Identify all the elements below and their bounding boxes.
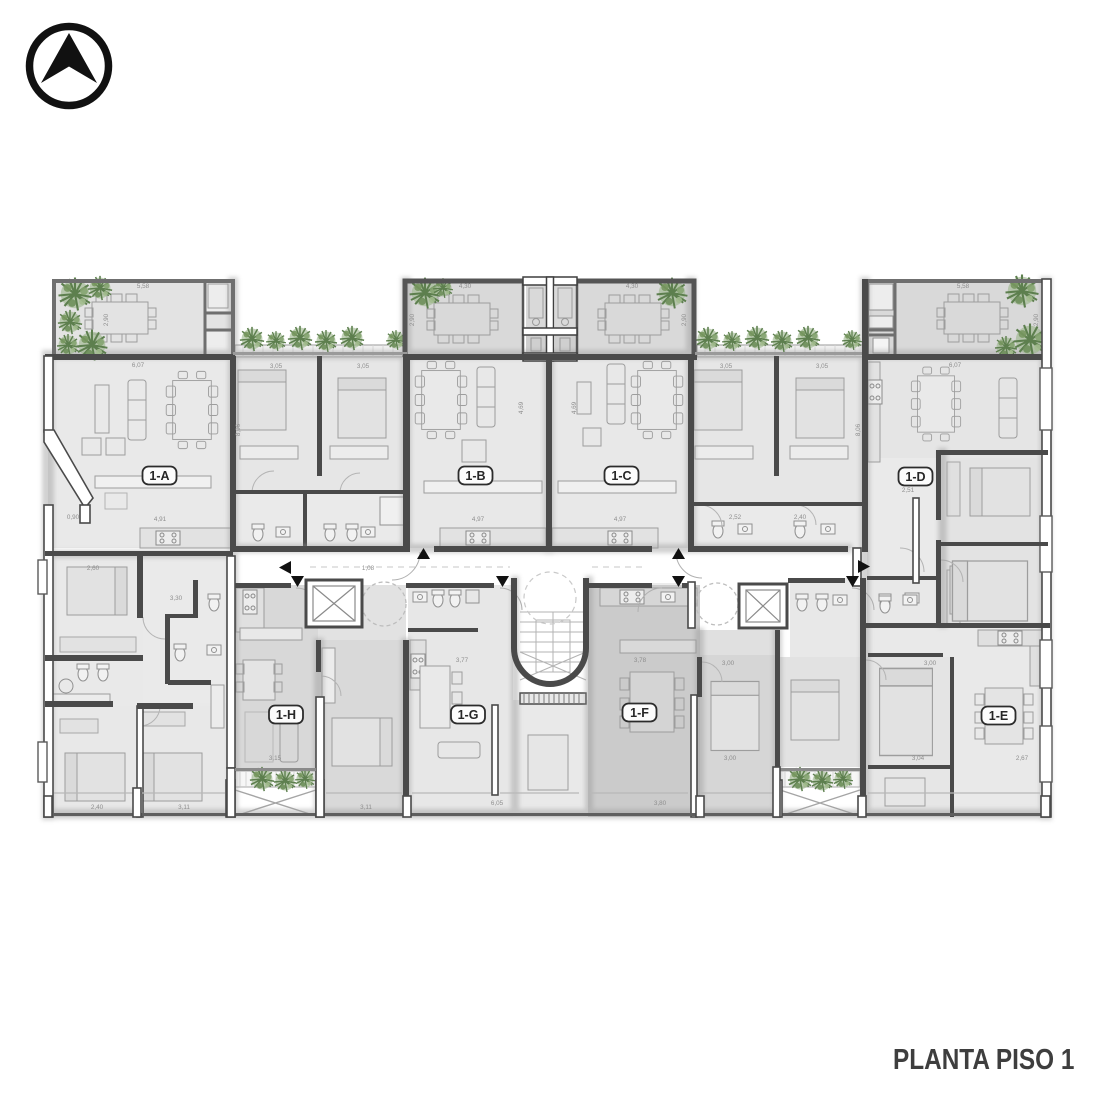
svg-text:2,40: 2,40 — [91, 804, 104, 811]
svg-text:3,00: 3,00 — [724, 755, 737, 762]
svg-text:2,52: 2,52 — [729, 514, 742, 521]
svg-text:3,77: 3,77 — [456, 657, 469, 664]
svg-text:1-A: 1-A — [149, 469, 169, 483]
svg-text:3,15: 3,15 — [269, 755, 282, 762]
svg-text:1,08: 1,08 — [362, 565, 375, 572]
svg-text:3,78: 3,78 — [634, 657, 647, 664]
svg-text:2,90: 2,90 — [1033, 313, 1040, 326]
svg-text:1-G: 1-G — [458, 708, 479, 722]
svg-text:3,05: 3,05 — [816, 363, 829, 370]
svg-text:4,30: 4,30 — [626, 283, 639, 290]
svg-text:4,97: 4,97 — [472, 516, 485, 523]
svg-text:2,67: 2,67 — [1016, 755, 1029, 762]
svg-text:2,40: 2,40 — [794, 514, 807, 521]
svg-text:5,58: 5,58 — [137, 283, 150, 290]
svg-text:3,05: 3,05 — [720, 363, 733, 370]
svg-text:6,07: 6,07 — [949, 362, 962, 369]
svg-text:4,91: 4,91 — [154, 516, 167, 523]
svg-text:2,90: 2,90 — [681, 313, 688, 326]
svg-text:3,05: 3,05 — [357, 363, 370, 370]
svg-text:4,69: 4,69 — [571, 401, 578, 414]
svg-text:4,30: 4,30 — [459, 283, 472, 290]
svg-text:1-D: 1-D — [905, 470, 925, 484]
svg-text:3,05: 3,05 — [270, 363, 283, 370]
svg-text:1-F: 1-F — [630, 706, 649, 720]
svg-text:6,05: 6,05 — [491, 800, 504, 807]
svg-text:3,80: 3,80 — [654, 800, 667, 807]
svg-text:1-E: 1-E — [989, 709, 1008, 723]
svg-text:2,90: 2,90 — [409, 313, 416, 326]
svg-text:2,60: 2,60 — [87, 565, 100, 572]
svg-text:1-B: 1-B — [465, 469, 485, 483]
svg-text:2,51: 2,51 — [902, 487, 915, 494]
svg-text:3,00: 3,00 — [924, 660, 937, 667]
svg-text:3,04: 3,04 — [912, 755, 925, 762]
svg-text:8,06: 8,06 — [855, 423, 862, 436]
svg-text:3,30: 3,30 — [170, 595, 183, 602]
svg-text:1-C: 1-C — [611, 469, 631, 483]
svg-text:1-H: 1-H — [276, 708, 296, 722]
svg-text:2,90: 2,90 — [103, 313, 110, 326]
svg-text:3,11: 3,11 — [178, 804, 190, 811]
svg-text:0,90: 0,90 — [67, 514, 80, 521]
svg-text:4,97: 4,97 — [614, 516, 627, 523]
svg-text:3,11: 3,11 — [360, 804, 372, 811]
svg-text:3,00: 3,00 — [722, 660, 735, 667]
svg-text:5,58: 5,58 — [957, 283, 970, 290]
svg-text:8,06: 8,06 — [235, 423, 242, 436]
svg-text:4,69: 4,69 — [518, 401, 525, 414]
svg-text:6,07: 6,07 — [132, 362, 145, 369]
